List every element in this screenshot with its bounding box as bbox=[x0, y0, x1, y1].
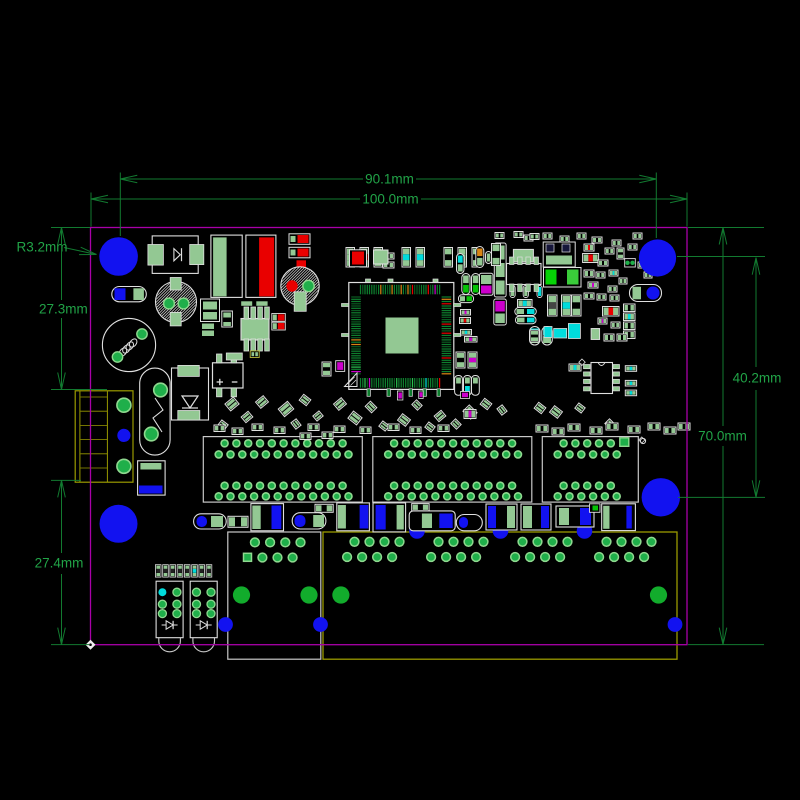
svg-text:70.0mm: 70.0mm bbox=[698, 429, 747, 444]
svg-text:27.4mm: 27.4mm bbox=[35, 556, 84, 571]
svg-text:90.1mm: 90.1mm bbox=[365, 172, 414, 187]
svg-text:100.0mm: 100.0mm bbox=[362, 192, 418, 207]
svg-text:40.2mm: 40.2mm bbox=[733, 371, 782, 386]
svg-text:27.3mm: 27.3mm bbox=[39, 302, 88, 317]
svg-text:R3.2mm: R3.2mm bbox=[17, 240, 68, 255]
